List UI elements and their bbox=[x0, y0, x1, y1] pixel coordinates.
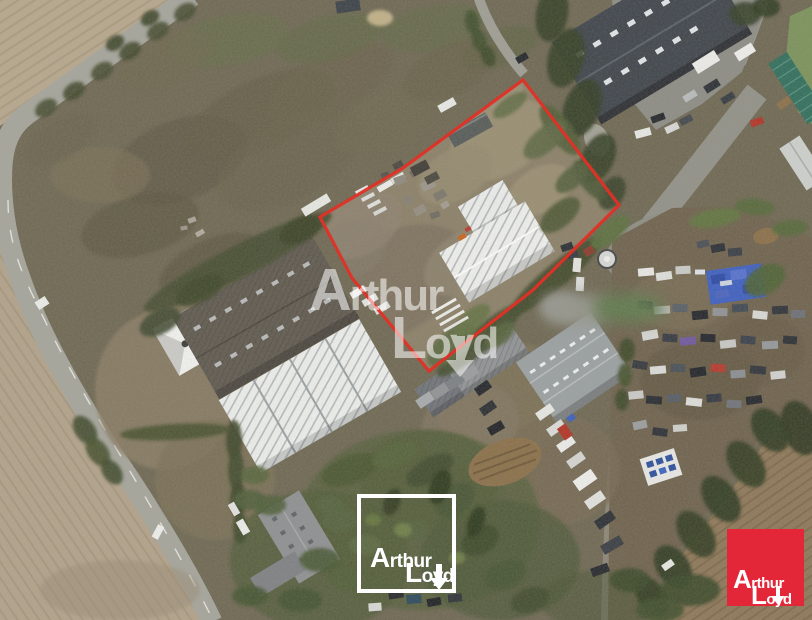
arrow-down-icon bbox=[771, 596, 785, 605]
logo-text: A bbox=[733, 564, 751, 594]
logo-text: A bbox=[370, 542, 390, 573]
brand-logo: Arthur Loyd bbox=[727, 529, 804, 606]
arrow-down-icon bbox=[430, 578, 448, 590]
logo-text: L bbox=[405, 557, 422, 588]
outlined-logo: Arthur Loyd bbox=[357, 494, 456, 593]
logo-text: L bbox=[751, 580, 766, 610]
aerial-photo: Arthur Loyd Arthur Loyd Arthur Loyd bbox=[0, 0, 812, 620]
